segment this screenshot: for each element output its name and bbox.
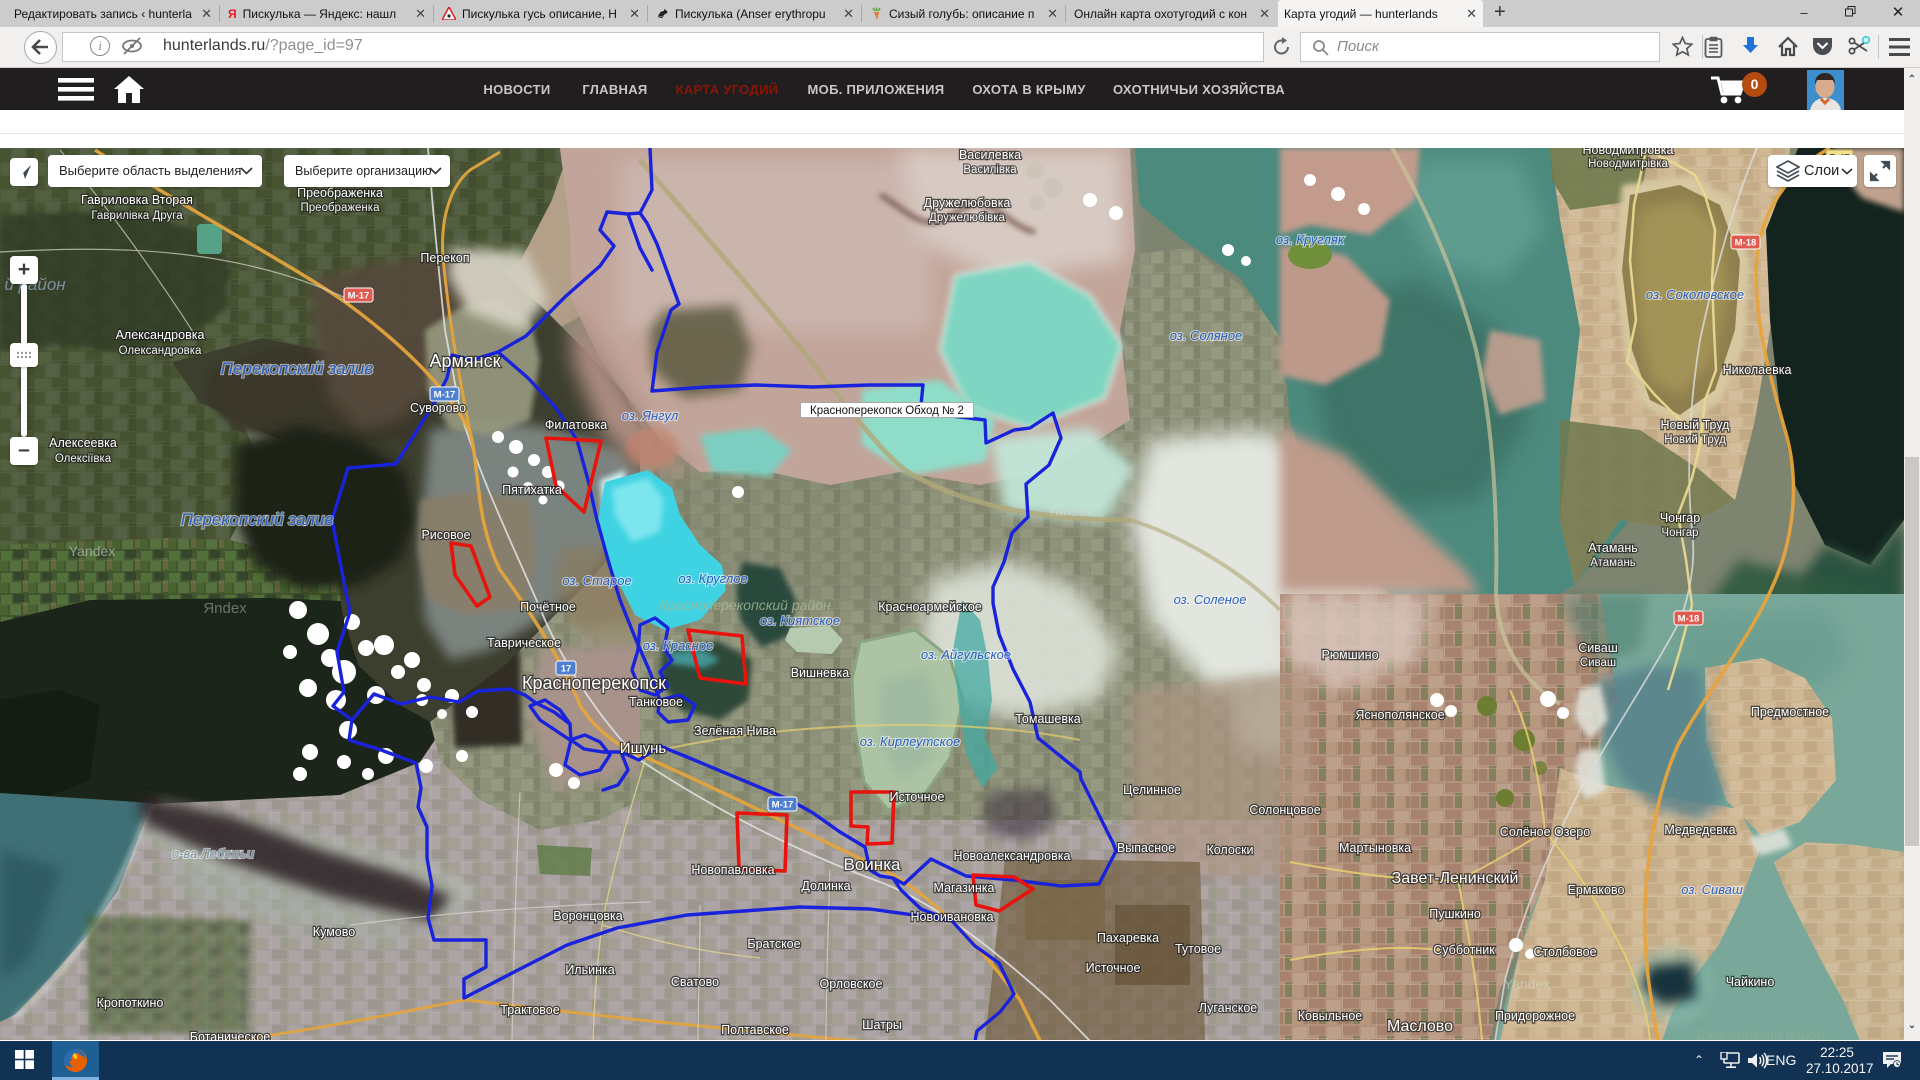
svg-text:оз. Айгульское: оз. Айгульское (921, 647, 1011, 662)
svg-text:Атамань: Атамань (1588, 541, 1638, 555)
svg-text:Ермаково: Ермаково (1568, 883, 1625, 897)
svg-text:Алексеевка: Алексеевка (49, 436, 117, 450)
svg-text:Завет-Ленинский: Завет-Ленинский (1392, 870, 1519, 887)
svg-text:Луганское: Луганское (1199, 1001, 1258, 1015)
svg-text:Красноперекопский район: Красноперекопский район (659, 597, 831, 613)
svg-text:Перекоп: Перекоп (420, 251, 469, 265)
svg-text:Ишунь: Ишунь (620, 740, 667, 757)
svg-text:оз. Киятское: оз. Киятское (760, 613, 840, 628)
svg-text:Братское: Братское (747, 937, 800, 951)
svg-text:оз. Кругляк: оз. Кругляк (1276, 232, 1345, 247)
svg-text:Магазинка: Магазинка (934, 881, 995, 895)
svg-text:Армянск: Армянск (430, 351, 501, 371)
svg-text:Почётное: Почётное (520, 600, 576, 614)
svg-text:Красноармейское: Красноармейское (878, 600, 982, 614)
svg-text:Перекопский залив: Перекопский залив (181, 510, 334, 529)
svg-text:Ковыльное: Ковыльное (1298, 1009, 1363, 1023)
svg-text:Медведевка: Медведевка (1664, 823, 1735, 837)
svg-text:Субботник: Субботник (1433, 943, 1495, 957)
svg-text:оз. Соколовское: оз. Соколовское (1646, 287, 1744, 302)
svg-text:Новоалександровка: Новоалександровка (954, 849, 1071, 863)
svg-text:Долинка: Долинка (801, 879, 850, 893)
svg-text:Маслово: Маслово (1387, 1018, 1453, 1035)
svg-text:Yandex: Yandex (1504, 976, 1550, 992)
svg-text:Новопавловка: Новопавловка (691, 863, 774, 877)
svg-text:Мартыновка: Мартыновка (1339, 841, 1411, 855)
svg-text:Пахаревка: Пахаревка (1097, 931, 1159, 945)
svg-text:оз. Старое: оз. Старое (562, 573, 631, 588)
svg-text:Источное: Источное (890, 790, 945, 804)
svg-text:Филатовка: Филатовка (545, 418, 607, 432)
svg-text:Новий Труд: Новий Труд (1664, 434, 1726, 446)
svg-text:Солонцовое: Солонцовое (1249, 803, 1320, 817)
svg-text:Целинное: Целинное (1123, 783, 1181, 797)
svg-text:Придорожное: Придорожное (1495, 1009, 1575, 1023)
svg-text:Новый Труд: Новый Труд (1661, 418, 1731, 432)
svg-text:М-17: М-17 (348, 291, 370, 302)
svg-text:Таврическое: Таврическое (487, 636, 561, 650)
svg-text:оз. Соляное: оз. Соляное (1170, 328, 1243, 343)
svg-text:оз. Сиваш: оз. Сиваш (1681, 882, 1743, 897)
svg-text:Преображенка: Преображенка (297, 186, 383, 200)
svg-text:оз. Янгул: оз. Янгул (622, 408, 679, 423)
svg-text:Джанкойский район: Джанкойский район (1693, 1027, 1824, 1040)
svg-text:М-18: М-18 (1735, 238, 1757, 249)
svg-text:Суворово: Суворово (410, 401, 466, 415)
svg-text:Василівка: Василівка (963, 164, 1017, 176)
svg-text:Александровка: Александровка (116, 328, 205, 342)
svg-text:Дружелюбівка: Дружелюбівка (929, 212, 1006, 224)
svg-text:Яснополянское: Яснополянское (1355, 708, 1444, 722)
svg-text:Томашевка: Томашевка (1015, 712, 1081, 726)
svg-text:Зелёная Нива: Зелёная Нива (694, 724, 776, 738)
svg-text:Сиваш: Сиваш (1578, 641, 1618, 655)
svg-text:о-ва Лебяжьи: о-ва Лебяжьи (172, 846, 254, 861)
svg-text:Олександровка: Олександровка (119, 345, 202, 357)
svg-text:оз. Кирлеутское: оз. Кирлеутское (860, 734, 961, 749)
svg-text:Источное: Источное (1086, 961, 1141, 975)
svg-text:Красноперекопск: Красноперекопск (522, 673, 666, 693)
svg-text:Пушкино: Пушкино (1429, 907, 1481, 921)
svg-text:Ильинка: Ильинка (565, 963, 614, 977)
svg-text:М-18: М-18 (1678, 614, 1700, 625)
svg-text:Орловское: Орловское (820, 977, 883, 991)
svg-text:Yandex: Yandex (69, 543, 115, 559)
svg-text:оз. Красное: оз. Красное (643, 638, 714, 653)
svg-text:Новодмитровка: Новодмитровка (1583, 148, 1674, 157)
svg-text:Тутовое: Тутовое (1175, 942, 1221, 956)
svg-text:Рисовое: Рисовое (421, 528, 470, 542)
svg-text:Выпасное: Выпасное (1117, 841, 1175, 855)
svg-text:Танковое: Танковое (629, 695, 683, 709)
svg-text:оз. Круглое: оз. Круглое (678, 571, 747, 586)
svg-text:Ботаническое: Ботаническое (190, 1030, 271, 1040)
svg-text:Yandex: Yandex (1047, 503, 1093, 519)
svg-text:Чайкино: Чайкино (1726, 975, 1775, 989)
svg-text:Перекопский залив: Перекопский залив (221, 359, 374, 378)
svg-text:Атамань: Атамань (1590, 557, 1636, 569)
svg-text:оз. Соленое: оз. Соленое (1174, 592, 1247, 607)
svg-text:Дружелюбовка: Дружелюбовка (924, 196, 1011, 210)
svg-text:Яndex: Яndex (203, 600, 247, 617)
svg-text:Трактовое: Трактовое (500, 1003, 559, 1017)
svg-text:Шатры: Шатры (862, 1018, 902, 1032)
svg-text:М-17: М-17 (772, 800, 794, 811)
svg-text:Кумово: Кумово (313, 925, 355, 939)
svg-text:Солёное Озеро: Солёное Озеро (1500, 825, 1590, 839)
svg-text:Николаевка: Николаевка (1723, 363, 1792, 377)
svg-text:М-17: М-17 (434, 390, 456, 401)
svg-text:Воронцовка: Воронцовка (553, 909, 622, 923)
svg-text:Преображенка: Преображенка (301, 202, 381, 214)
svg-text:Кропоткино: Кропоткино (97, 996, 164, 1010)
svg-text:Рюмшино: Рюмшино (1321, 648, 1378, 662)
svg-text:Предмостное: Предмостное (1751, 705, 1829, 719)
svg-text:Новодмитрівка: Новодмитрівка (1588, 158, 1668, 170)
svg-text:Василевка: Василевка (959, 148, 1021, 162)
svg-text:Новоивановка: Новоивановка (910, 910, 993, 924)
svg-text:Столбовое: Столбовое (1533, 945, 1596, 959)
svg-text:Гавриловка Вторая: Гавриловка Вторая (81, 193, 193, 207)
svg-text:Олексіївка: Олексіївка (55, 453, 112, 465)
svg-text:Пятихатка: Пятихатка (502, 483, 562, 497)
svg-text:Колоски: Колоски (1206, 843, 1253, 857)
svg-text:Сватово: Сватово (671, 975, 719, 989)
svg-text:Чонгар: Чонгар (1660, 511, 1700, 525)
svg-text:Вишневка: Вишневка (791, 666, 850, 680)
svg-text:Полтавское: Полтавское (721, 1023, 789, 1037)
svg-text:Сиваш: Сиваш (1580, 657, 1616, 669)
svg-text:Гаврилівка Друга: Гаврилівка Друга (91, 210, 183, 222)
svg-text:Чонгар: Чонгар (1661, 527, 1698, 539)
svg-text:Воинка: Воинка (844, 855, 901, 874)
